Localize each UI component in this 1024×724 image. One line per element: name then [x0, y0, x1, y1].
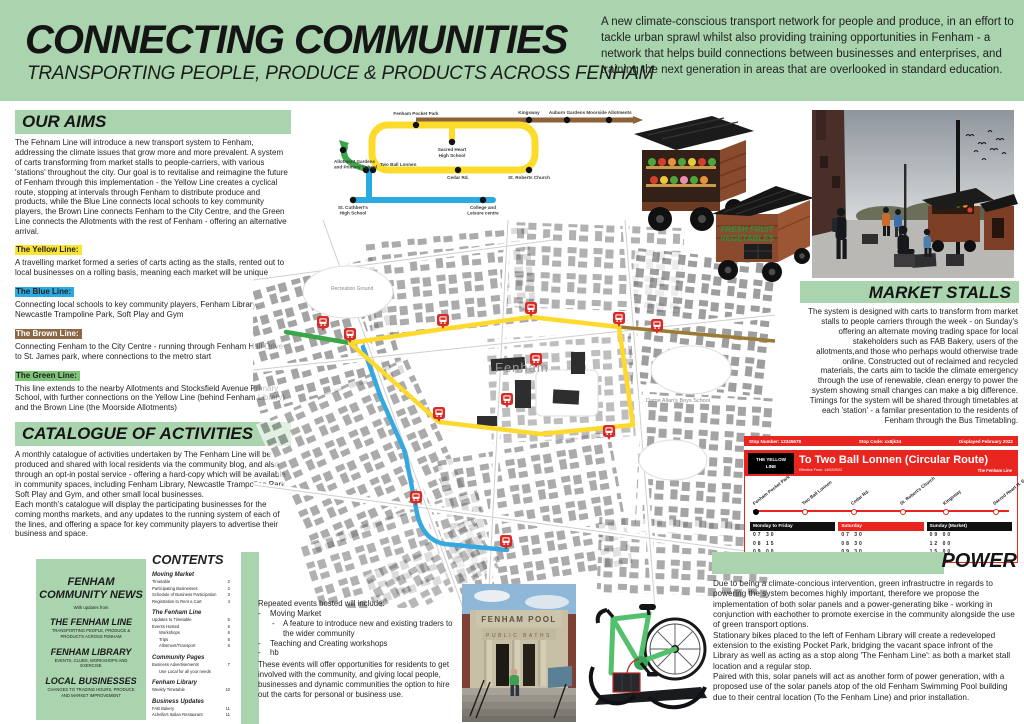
station-label: St. Cuthbert's — [338, 205, 368, 210]
route-stop-dot — [993, 509, 999, 515]
yellow-line-text: A travelling market formed a series of c… — [15, 258, 291, 278]
yellow-line-block: The Yellow Line: A travelling market for… — [15, 239, 291, 278]
contents-section-title: Community Pages — [152, 655, 230, 662]
route-stop-dot — [900, 509, 906, 515]
route-line — [753, 510, 1009, 512]
page-title: CONNECTING COMMUNITIES — [25, 18, 567, 63]
event-item: Teaching and Creating workshops — [258, 639, 462, 649]
timetable-topbar: Stop Number: 12345678 Stop Code: xx8jk34… — [744, 436, 1018, 446]
route-stop-label: Kingsway — [942, 489, 962, 506]
blue-line-block: The Blue Line: Connecting local schools … — [15, 281, 291, 320]
blue-line — [353, 170, 493, 200]
contents-row: Registration to Rent a Cart4 — [152, 599, 230, 606]
contents-row: Use Local for all your needs — [152, 669, 230, 676]
news-tagline: With updates from — [36, 605, 146, 610]
green-line-text: This line extends to the nearby Allotmen… — [15, 384, 291, 414]
green-line-block: The Green Line: This line extends to the… — [15, 365, 291, 414]
cart-sign-line2: VEGETABLES — [720, 234, 774, 243]
news-entry-desc: TRANSPORTING PEOPLE, PRODUCE & PRODUCTS … — [36, 627, 146, 639]
our-aims-body: The Fehnam Line will introduce a new tra… — [15, 138, 291, 237]
market-scene-photomontage — [806, 106, 1020, 286]
route-stop-dot — [753, 509, 759, 515]
station-label: Allotment Gardens — [334, 159, 376, 164]
station-label: High School — [340, 211, 367, 216]
power-generating-bike-illustration — [583, 597, 711, 711]
station-label: St. Roberts Church — [508, 175, 550, 180]
market-stalls-body: The system is designed with carts to tra… — [806, 307, 1018, 426]
doorway-left — [496, 644, 509, 686]
market-cart-closed-illustration: FRESH FRUIT VEGETABLES — [712, 186, 814, 282]
catalogue-heading: CATALOGUE OF ACTIVITIES — [15, 422, 291, 446]
header-band: CONNECTING COMMUNITIES TRANSPORTING PEOP… — [0, 0, 1024, 101]
public-baths-engraving: PUBLIC BATHS — [486, 633, 552, 639]
power-body: Due to being a climate-concious interven… — [713, 579, 1018, 703]
route-stop-label: Two Ball Lonnen — [801, 480, 833, 506]
timetable-effective-date: Effective From: 14/02/2022 — [799, 468, 988, 472]
poster-root: CONNECTING COMMUNITIES TRANSPORTING PEOP… — [0, 0, 1024, 724]
bus-timetable: Stop Number: 12345678 Stop Code: xx8jk34… — [744, 436, 1018, 563]
station-label: Kingsway — [518, 110, 540, 115]
cart-sign-line1: FRESH FRUIT — [721, 225, 775, 234]
power-heading: POWER — [941, 550, 1017, 573]
timetable-route-diagram: Fenham Pocket Park Two Ball Lonnen Cedar… — [745, 476, 1017, 522]
station-label: Sacred Heart — [438, 147, 467, 152]
station-label: and Primary School — [334, 165, 377, 170]
displayed-date: Displayed February 2022 — [959, 439, 1013, 444]
news-entry-name: THE FENHAM LINE — [36, 617, 146, 627]
pool-name-engraving: FENHAM POOL — [481, 615, 557, 624]
route-stop-label: Fenham Pocket Park — [752, 474, 791, 506]
timetable-brand: The Fenham Line — [978, 468, 1012, 473]
contents-section-title: The Fenham Line — [152, 610, 230, 617]
blue-line-text: Connecting local schools to key communit… — [15, 300, 291, 320]
route-stop-label: Sacred Heart H. School — [992, 471, 1024, 506]
route-stop-label: St. Robert's Church — [899, 476, 936, 506]
station-label: Cedar Rd. — [447, 175, 469, 180]
fenham-pool-photo: FENHAM POOL PUBLIC BATHS — [462, 584, 576, 722]
contents-row: Achella's Italian Restaurant11 — [152, 712, 230, 719]
events-outro: These events will offer opportunities fo… — [258, 660, 462, 700]
timetable-title: To Two Ball Lonnen (Circular Route) — [799, 455, 988, 466]
route-stop-dot — [802, 509, 808, 515]
page-subtitle: TRANSPORTING PEOPLE, PRODUCE & PRODUCTS … — [27, 63, 654, 85]
route-stop-dot — [943, 509, 949, 515]
station-label: College and — [470, 205, 496, 210]
route-stop-label: Cedar Rd. — [850, 489, 870, 506]
dash-bullet — [258, 609, 270, 619]
news-title: FENHAM COMMUNITY NEWS — [36, 576, 146, 601]
station-label: Fenham Pocket Park — [393, 111, 439, 116]
market-cart-illustrations: FRESH FRUIT VEGETABLES — [628, 104, 818, 290]
market-stalls-heading: MARKET STALLS — [800, 281, 1019, 303]
news-entry-desc: EVENTS, CLUBS, WORKSHOPS AND EXERCISE — [36, 657, 146, 669]
station-label: Two Ball Lonnen — [380, 162, 417, 167]
map-park-label: Recreation Ground — [331, 286, 373, 292]
contents-heading: CONTENTS — [152, 552, 230, 567]
station-label: Moorside Allotments — [586, 110, 632, 115]
news-entry-name: FENHAM LIBRARY — [36, 647, 146, 657]
station-label: Leisure centre — [467, 211, 499, 216]
power-heading-band: POWER — [712, 552, 1019, 574]
transit-line-diagram: Fenham Pocket Park Kingsway Auburn Garde… — [333, 106, 648, 221]
timetable-header: THE YELLOW LINE To Two Ball Lonnen (Circ… — [745, 451, 1017, 476]
dash-bullet — [272, 619, 283, 639]
brown-line-block: The Brown Line: Connecting Fenham to the… — [15, 323, 291, 362]
handlebars — [598, 610, 607, 623]
contents-section-title: Moving Market — [152, 572, 230, 579]
contents-row: Allotment/Transport6 — [152, 643, 230, 650]
blue-line-label: The Blue Line: — [15, 287, 74, 297]
line-badge: THE YELLOW LINE — [748, 453, 794, 473]
contents-section-title: Business Updates — [152, 699, 230, 706]
blue-ramp — [548, 666, 572, 688]
yellow-line-label: The Yellow Line: — [15, 245, 82, 255]
doorway-right — [523, 644, 535, 686]
catalogue-body: A monthly catalogue of activities undert… — [15, 450, 291, 539]
map-school-label: Dame Allan's Boys School — [646, 398, 710, 404]
station-label: Auburn Gardens — [549, 110, 586, 115]
dash-bullet — [258, 639, 270, 649]
power-band-fill — [712, 552, 944, 574]
scene-second-stall — [980, 194, 1018, 250]
contents-section-title: Fenham Library — [152, 680, 230, 687]
contents-row: Weekly Timetable10 — [152, 687, 230, 694]
timetable-box: THE YELLOW LINE To Two Ball Lonnen (Circ… — [744, 450, 1018, 563]
community-news-box: FENHAM COMMUNITY NEWS With updates from … — [36, 559, 146, 720]
dash-bullet — [258, 648, 270, 658]
events-intro: Repeated events hosted will include: — [258, 599, 462, 609]
stop-code: Stop Code: xx8jk34 — [859, 439, 901, 444]
intro-paragraph: A new climate-conscious transport networ… — [601, 15, 1017, 78]
left-column: OUR AIMS The Fehnam Line will introduce … — [15, 110, 291, 539]
event-subitem: A feature to introduce new and existing … — [258, 619, 462, 639]
news-entry-name: LOCAL BUSINESSES — [36, 676, 146, 686]
pedal — [647, 672, 658, 677]
route-stop-dot — [851, 509, 857, 515]
station-label: High School — [439, 153, 466, 158]
contents-list: CONTENTS Moving Market Timetable2 Partic… — [152, 552, 230, 719]
stop-number: Stop Number: 12345678 — [749, 439, 801, 444]
street-pole — [904, 164, 906, 236]
event-item: hb — [258, 648, 462, 658]
events-block: Repeated events hosted will include: Mov… — [258, 599, 462, 700]
event-item: Moving Market — [258, 609, 462, 619]
news-entry-desc: CHANGES TO TRADING HOURS, PRODUCE AND MA… — [36, 686, 146, 698]
brown-line-text: Connecting Fenham to the City Centre - r… — [15, 342, 291, 362]
brown-line-label: The Brown Line: — [15, 329, 82, 339]
our-aims-heading: OUR AIMS — [15, 110, 291, 134]
green-line-label: The Green Line: — [15, 371, 80, 381]
